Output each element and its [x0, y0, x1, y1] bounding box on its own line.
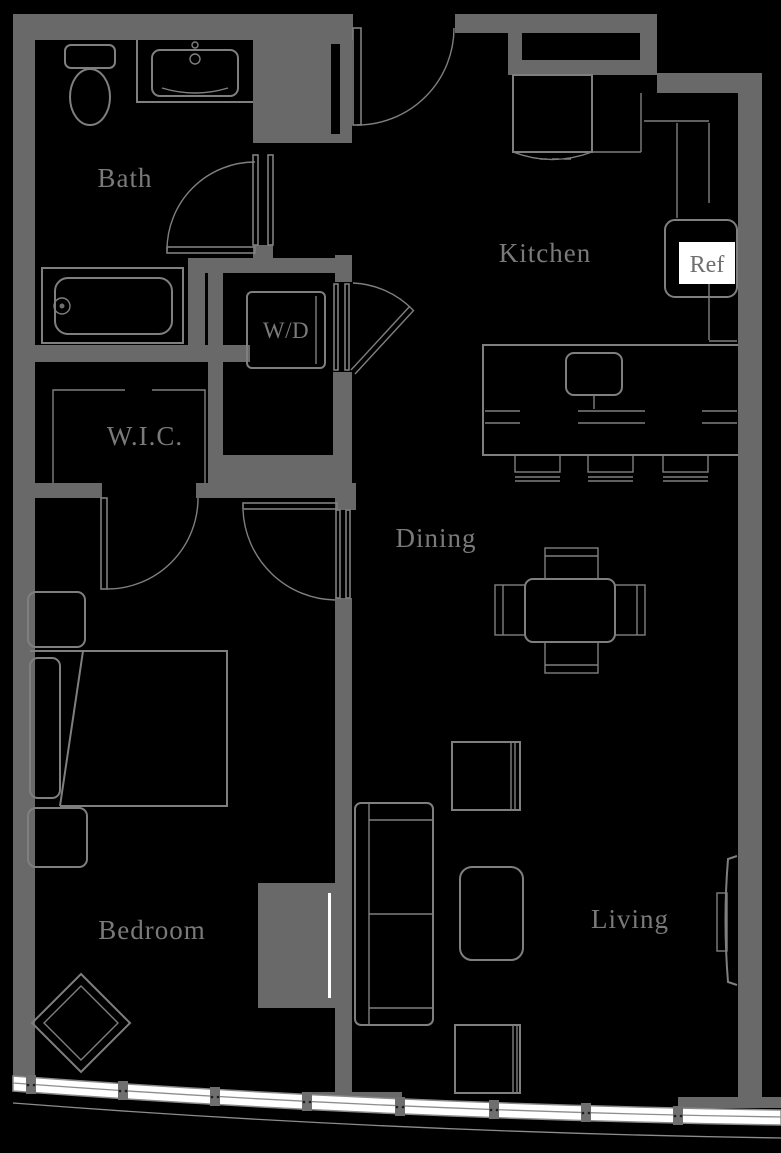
living-furniture: [355, 742, 737, 1093]
bedroom-door-leaf: [243, 503, 337, 509]
coffee-table: [460, 867, 523, 960]
wall-hall-door-stub-top: [335, 255, 352, 282]
accent-chair-top-back: [511, 742, 515, 810]
wall-hall-south: [196, 483, 337, 498]
wall-niche-right: [640, 14, 657, 75]
wall-left: [13, 14, 35, 1076]
floor-plan-page: Ref: [0, 0, 781, 1153]
bar-stool: [663, 455, 708, 472]
bathtub-basin: [55, 278, 172, 334]
mullion-dot: [27, 1084, 30, 1087]
bath-door-jamb: [268, 155, 273, 245]
mullion-dot: [217, 1096, 220, 1099]
bedroom-door: [243, 503, 350, 600]
entry-door-swing-arc: [357, 28, 454, 125]
wall-window-sill-right: [678, 1097, 781, 1108]
bath-sink-basin-curve: [162, 88, 228, 93]
hall-door-swing-arc: [353, 283, 413, 310]
wall-bath-chase: [188, 273, 205, 348]
wall-wic-south-left: [13, 483, 102, 498]
entry-door: [353, 28, 454, 125]
bedroom-door-swing-arc: [243, 510, 335, 600]
sofa-cushion-lines: [369, 803, 433, 1025]
mullion-dot: [125, 1090, 128, 1093]
mullion-dot: [309, 1101, 312, 1104]
bar-stools: [515, 455, 708, 481]
bedroom-door-jamb: [336, 510, 340, 598]
nightstand-bottom: [28, 808, 87, 867]
bath-door-leaf: [167, 247, 255, 253]
kitchen-counter-lines: [592, 93, 737, 341]
mullion-dot: [674, 1115, 677, 1118]
bath-room-label: Bath: [98, 163, 153, 193]
dining-room-label: Dining: [395, 523, 476, 553]
wall-wd-south: [208, 455, 352, 483]
mullion-dot: [33, 1084, 36, 1087]
wic-door-leaf: [101, 498, 107, 589]
wardrobe-block: [258, 883, 335, 1008]
toilet-tank: [65, 45, 115, 68]
dining-table: [525, 579, 615, 642]
toilet-bowl: [70, 69, 110, 125]
dining-chair-left: [495, 585, 525, 635]
wall-bath-door-head: [253, 245, 273, 260]
bedroom-furniture: [28, 592, 335, 1072]
bedroom-room-label: Bedroom: [98, 915, 206, 945]
hall-door: [334, 283, 414, 374]
bar-stool-back: [515, 477, 560, 481]
wall-wd-top: [188, 258, 352, 273]
hall-door-jamb: [345, 284, 349, 370]
wic-room-label: W.I.C.: [107, 421, 183, 451]
wall-entry-block-slot: [331, 44, 340, 134]
bath-sink-handle: [192, 42, 198, 48]
bathtub-drain-dot: [60, 304, 65, 309]
mullion-dot: [402, 1106, 405, 1109]
living-room-label: Living: [591, 904, 669, 934]
bar-stool-back: [588, 477, 633, 481]
bath-door-swing-arc: [167, 162, 255, 250]
mullion-dot: [680, 1115, 683, 1118]
mullion-dot: [119, 1090, 122, 1093]
floor-plan-drawing: Ref: [0, 0, 781, 1153]
window-wall: [13, 1075, 781, 1138]
wall-niche-bottom: [508, 60, 640, 75]
bedroom-door-jamb: [346, 510, 350, 598]
wall-hall-east: [333, 372, 352, 483]
mullion-dot: [582, 1112, 585, 1115]
hall-door-jamb: [334, 284, 338, 370]
hall-door-leaf: [351, 306, 414, 374]
accent-chair-bottom-back: [513, 1025, 517, 1093]
refrigerator-label: Ref: [690, 252, 725, 278]
kitchen-room-label: Kitchen: [499, 238, 591, 268]
kitchen-fixtures: Ref: [483, 75, 738, 481]
bath-sink-faucet: [190, 54, 200, 64]
mullion-dot: [211, 1096, 214, 1099]
wall-bedroom-divider: [335, 598, 352, 1095]
island-sink: [566, 353, 622, 395]
accent-chair-top: [452, 742, 520, 810]
mullion-dot: [496, 1109, 499, 1112]
bath-door: [167, 155, 273, 253]
wall-right: [738, 73, 762, 1103]
entry-door-leaf: [353, 28, 361, 125]
wall-top-right: [455, 14, 657, 33]
bath-door-jamb: [253, 155, 258, 245]
mullion-dot: [396, 1106, 399, 1109]
wall-top-left: [13, 14, 353, 40]
accent-table-diamond-inner: [44, 986, 118, 1060]
wic-door: [101, 498, 198, 589]
dining-chair-right: [615, 585, 645, 635]
island-overhang-lines: [485, 411, 737, 423]
bar-stool: [515, 455, 560, 472]
accent-table-diamond-outer: [32, 974, 130, 1072]
kitchen-island: [483, 345, 738, 455]
mullion-dot: [303, 1101, 306, 1104]
dining-set: [495, 548, 645, 673]
wardrobe-door-slit: [328, 893, 331, 998]
wic-door-swing-arc: [107, 498, 198, 589]
wall-wic-east: [208, 273, 223, 483]
mullion-dot: [588, 1112, 591, 1115]
accent-chair-bottom: [455, 1025, 520, 1093]
stove: [513, 75, 592, 152]
dining-chair-top: [545, 548, 598, 579]
washer-dryer-label: W/D: [263, 318, 309, 343]
dining-chair-bottom: [545, 642, 598, 673]
wall-divider-stub: [335, 483, 356, 510]
nightstand-top: [28, 592, 85, 647]
mullion-dot: [490, 1109, 493, 1112]
bar-stool: [588, 455, 633, 472]
bar-stool-back: [663, 477, 708, 481]
wall-niche-left: [508, 33, 522, 62]
